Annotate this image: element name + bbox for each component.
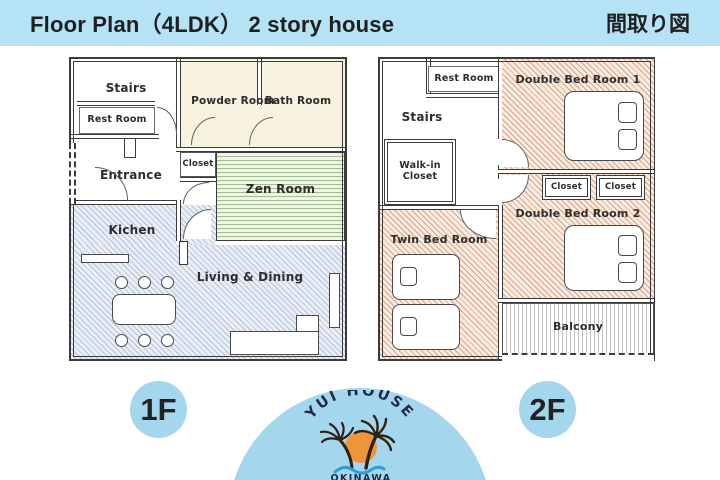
dining-table-icon [112,294,176,325]
room-label-zen-room: Zen Room [218,183,343,197]
door-arc-icon [183,182,209,204]
closet-box: Closet [542,175,591,200]
floor-plan-2f: Rest Room Stairs Walk-in Closet Double B… [378,57,655,361]
header-bar: Floor Plan（4LDK） 2 story house 間取り図 [0,0,720,46]
tv-board-icon [329,273,340,328]
pillow-icon [618,235,637,256]
wall [176,59,181,150]
single-bed-icon [392,304,460,350]
wall [426,93,500,98]
pillow-icon [400,267,417,286]
balcony-dashed-edge [502,353,654,363]
page-title: Floor Plan（4LDK） 2 story house [30,7,394,39]
rest-room-box: Rest Room [79,107,155,134]
chair-icon [115,334,128,347]
pillow-icon [618,262,637,283]
closet-box: Closet [596,175,645,200]
rest-room-box: Rest Room [428,66,500,92]
pillow-icon [400,317,417,336]
room-label-living-dining: Living & Dining [174,271,326,285]
sofa-icon [230,331,319,355]
single-bed-icon [392,254,460,300]
floor-badge-2f: 2F [519,381,576,438]
door-arc-icon [157,107,177,134]
stairs-landing-line [77,101,155,106]
wall-stub [179,241,188,265]
entrance-door-dashed-line [69,143,76,204]
floor-badge-1f: 1F [130,381,187,438]
chair-icon [115,276,128,289]
room-label-balcony: Balcony [502,321,654,334]
svg-text:YUI HOUSE: YUI HOUSE [302,390,417,423]
walk-in-closet-box: Walk-in Closet [384,139,456,205]
chair-icon [138,334,151,347]
double-bed-icon [564,225,644,291]
pillow-icon [618,102,637,123]
yui-house-logo: YUI HOUSE OKINAWA [285,390,435,480]
double-bed-icon [564,91,644,161]
wall [71,134,159,139]
logo-name-arc-text: YUI HOUSE [302,390,417,423]
chair-icon [161,276,174,289]
room-label-double-bed-room-2: Double Bed Room 2 [502,208,654,221]
room-label-twin-bed-room: Twin Bed Room [380,234,498,247]
wall [180,177,216,182]
room-label-rest-room: Rest Room [434,74,493,85]
floor-badge-2f-label: 2F [529,392,565,428]
room-label-closet: Closet [605,183,636,193]
floor-plan-page: Floor Plan（4LDK） 2 story house 間取り図 Powd… [0,0,720,480]
kitchen-counter-icon [81,254,129,263]
room-label-stairs: Stairs [380,111,464,125]
logo-location-text: OKINAWA [330,473,391,480]
chair-icon [161,334,174,347]
pillow-icon [618,129,637,150]
floor-plan-1f: Powder Room Bath Room Stairs Rest Room E… [69,57,347,361]
room-label-kitchen: Kichen [82,224,182,238]
room-label-double-bed-room-1: Double Bed Room 1 [502,74,654,87]
room-label-rest-room: Rest Room [87,115,146,126]
room-label-bath-room: Bath Room [251,95,345,107]
chair-icon [138,276,151,289]
room-label-walk-in-closet: Closet [403,172,438,183]
page-title-japanese: 間取り図 [606,8,690,38]
closet-box: Closet [180,152,216,177]
room-label-closet: Closet [551,183,582,193]
room-label-stairs: Stairs [80,82,172,96]
floor-badge-1f-label: 1F [140,392,176,428]
wall-stub [124,138,136,158]
room-label-closet: Closet [182,160,213,170]
